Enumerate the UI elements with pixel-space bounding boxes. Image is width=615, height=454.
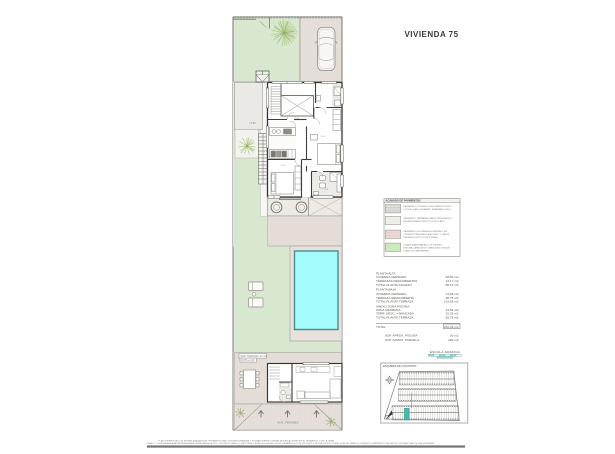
- svg-text:COTA +1.10: COTA +1.10: [241, 359, 255, 362]
- svg-text:**LAS SUPERFICIES UTILES REFLE: **LAS SUPERFICIES UTILES REFLEJADAS EN E…: [158, 439, 334, 442]
- svg-text:SUP. APROX. PISCINA: SUP. APROX. PISCINA: [385, 333, 418, 337]
- svg-text:ACABADO DE PAVIMENTOS: ACABADO DE PAVIMENTOS: [386, 199, 421, 203]
- svg-text:VIAL PRIVADO: VIAL PRIVADO: [277, 420, 298, 424]
- svg-text:PAVIMENTO DE HORMIGON IMPRESO: PAVIMENTO DE HORMIGON IMPRESO EN: [404, 230, 448, 233]
- svg-text:TOTAL PLANTA TERRAZA: TOTAL PLANTA TERRAZA: [376, 315, 414, 319]
- svg-text:VIVIENDA 75: VIVIENDA 75: [404, 30, 458, 39]
- svg-text:ZONAS EXTERIORES DE ACCESO Y V: ZONAS EXTERIORES DE ACCESO Y VIALES: [404, 233, 450, 236]
- svg-text:133.65 m2: 133.65 m2: [444, 300, 459, 304]
- svg-text:PLANO 1: VIVIENDA AISLADA REPR: PLANO 1: VIVIENDA AISLADA REPRESENTADA S…: [147, 442, 435, 445]
- svg-text:ESQUEMA DE CONJUNTO: ESQUEMA DE CONJUNTO: [383, 364, 416, 368]
- svg-text:COLOR CLARO. ACABADO FRATASADO: COLOR CLARO. ACABADO FRATASADO S/DF: [404, 208, 452, 211]
- svg-text:▷1.50: ▷1.50: [249, 122, 256, 125]
- svg-text:ESCALA GRÁFICA: ESCALA GRÁFICA: [430, 350, 461, 354]
- svg-text:400 m2: 400 m2: [448, 338, 459, 342]
- svg-text:SUP. TERRAZA 12 m2: SUP. TERRAZA 12 m2: [241, 354, 268, 358]
- svg-text:SUP. APROX. PARCELA: SUP. APROX. PARCELA: [385, 338, 420, 342]
- svg-text:TOTAL: TOTAL: [376, 325, 386, 329]
- svg-text:30 m2: 30 m2: [450, 333, 459, 337]
- svg-text:PAVIMENTO TERRAZAS GRES PORCEL: PAVIMENTO TERRAZAS GRES PORCELANICO: [404, 217, 452, 220]
- svg-text:PLANO DE JARDINERIA: PLANO DE JARDINERIA: [404, 250, 429, 253]
- svg-text:ANTIDESLIZANTE S/DF. COLOR CLA: ANTIDESLIZANTE S/DF. COLOR CLARO: [404, 220, 445, 223]
- svg-text:56.75 m2: 56.75 m2: [446, 315, 459, 319]
- svg-text:TOTAL PLANTA TERRAZA: TOTAL PLANTA TERRAZA: [376, 300, 414, 304]
- svg-text:PAVIMENTO CONTINUO DE HORMIGON: PAVIMENTO CONTINUO DE HORMIGON VISTO: [404, 205, 453, 208]
- svg-text:PRIVADOS S/DF COLOR TIERRA: PRIVADOS S/DF COLOR TIERRA: [404, 236, 438, 239]
- svg-text:252.46 m2: 252.46 m2: [444, 325, 459, 329]
- svg-text:86.67 m2: 86.67 m2: [446, 283, 459, 287]
- svg-text:ZONAS AJARDINADAS CON CESPED: ZONAS AJARDINADAS CON CESPED: [404, 244, 443, 247]
- svg-text:TOTAL PLANTA ACCESO: TOTAL PLANTA ACCESO: [376, 283, 412, 287]
- svg-text:NATURAL, ARBUSTOS Y ARBOLADO S: NATURAL, ARBUSTOS Y ARBOLADO SEGUN: [404, 247, 451, 250]
